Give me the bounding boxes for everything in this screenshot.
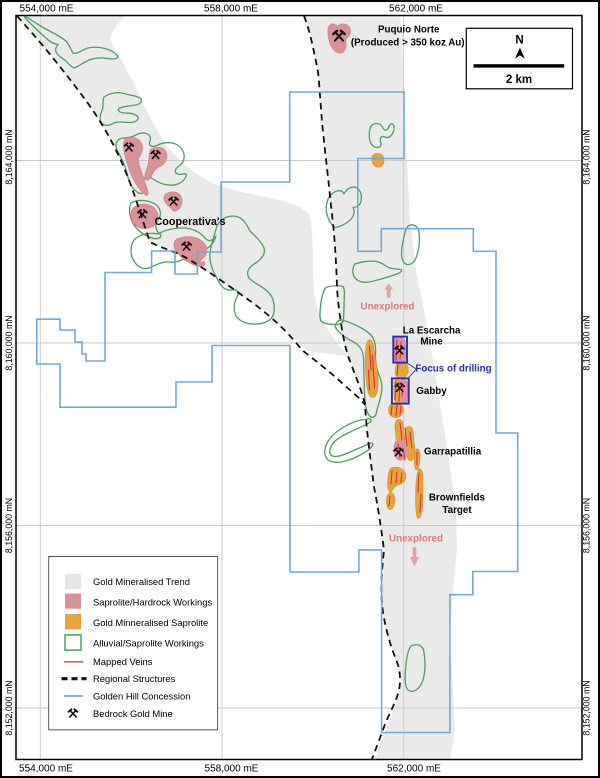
svg-text:Unexplored: Unexplored bbox=[361, 302, 415, 313]
svg-text:Focus of drilling: Focus of drilling bbox=[415, 364, 491, 375]
svg-text:Cooperativa's: Cooperativa's bbox=[155, 216, 226, 228]
svg-text:Mine: Mine bbox=[420, 337, 443, 348]
svg-text:N: N bbox=[515, 35, 523, 47]
svg-text:Unexplored: Unexplored bbox=[389, 533, 443, 544]
svg-text:8,160,000 mN: 8,160,000 mN bbox=[4, 315, 14, 370]
svg-text:2 km: 2 km bbox=[506, 74, 532, 86]
svg-text:Gold Mineralised Trend: Gold Mineralised Trend bbox=[93, 576, 190, 587]
svg-text:562,000 mE: 562,000 mE bbox=[389, 4, 443, 15]
svg-text:558,000 mE: 558,000 mE bbox=[205, 764, 259, 775]
svg-text:554,000 mE: 554,000 mE bbox=[20, 4, 74, 15]
svg-text:Puquio Norte: Puquio Norte bbox=[378, 25, 440, 36]
svg-text:La Escarcha: La Escarcha bbox=[403, 326, 461, 337]
svg-text:8,156,000 mN: 8,156,000 mN bbox=[4, 498, 14, 553]
svg-text:Regional Structures: Regional Structures bbox=[93, 673, 176, 684]
svg-text:8,164,000 mN: 8,164,000 mN bbox=[4, 129, 14, 184]
svg-text:Gabby: Gabby bbox=[416, 386, 447, 397]
svg-text:558,000 mE: 558,000 mE bbox=[204, 4, 258, 15]
svg-text:8,156,000 mN: 8,156,000 mN bbox=[582, 498, 592, 553]
svg-text:Brownfields: Brownfields bbox=[429, 493, 486, 504]
svg-text:Bedrock Gold Mine: Bedrock Gold Mine bbox=[93, 708, 173, 719]
svg-text:Gold Minneralised Saprolite: Gold Minneralised Saprolite bbox=[93, 617, 208, 628]
svg-text:554,000 mE: 554,000 mE bbox=[19, 764, 73, 775]
svg-text:Target: Target bbox=[442, 505, 472, 516]
svg-text:Saprolite/Hardrock Workings: Saprolite/Hardrock Workings bbox=[93, 596, 212, 607]
svg-text:8,152,000 mN: 8,152,000 mN bbox=[4, 680, 14, 735]
svg-text:562,000 mE: 562,000 mE bbox=[387, 764, 441, 775]
svg-text:Alluvial/Saprolite Workings: Alluvial/Saprolite Workings bbox=[93, 638, 204, 649]
svg-text:8,160,000 mN: 8,160,000 mN bbox=[582, 315, 592, 370]
svg-text:8,164,000 mN: 8,164,000 mN bbox=[582, 129, 592, 184]
svg-text:Garrapatillia: Garrapatillia bbox=[424, 447, 482, 458]
svg-text:8,152,000 mN: 8,152,000 mN bbox=[582, 680, 592, 735]
svg-text:(Produced > 350 koz Au): (Produced > 350 koz Au) bbox=[351, 38, 465, 49]
svg-text:Mapped Veins: Mapped Veins bbox=[93, 656, 153, 667]
svg-text:Golden Hill Concession: Golden Hill Concession bbox=[93, 690, 190, 701]
